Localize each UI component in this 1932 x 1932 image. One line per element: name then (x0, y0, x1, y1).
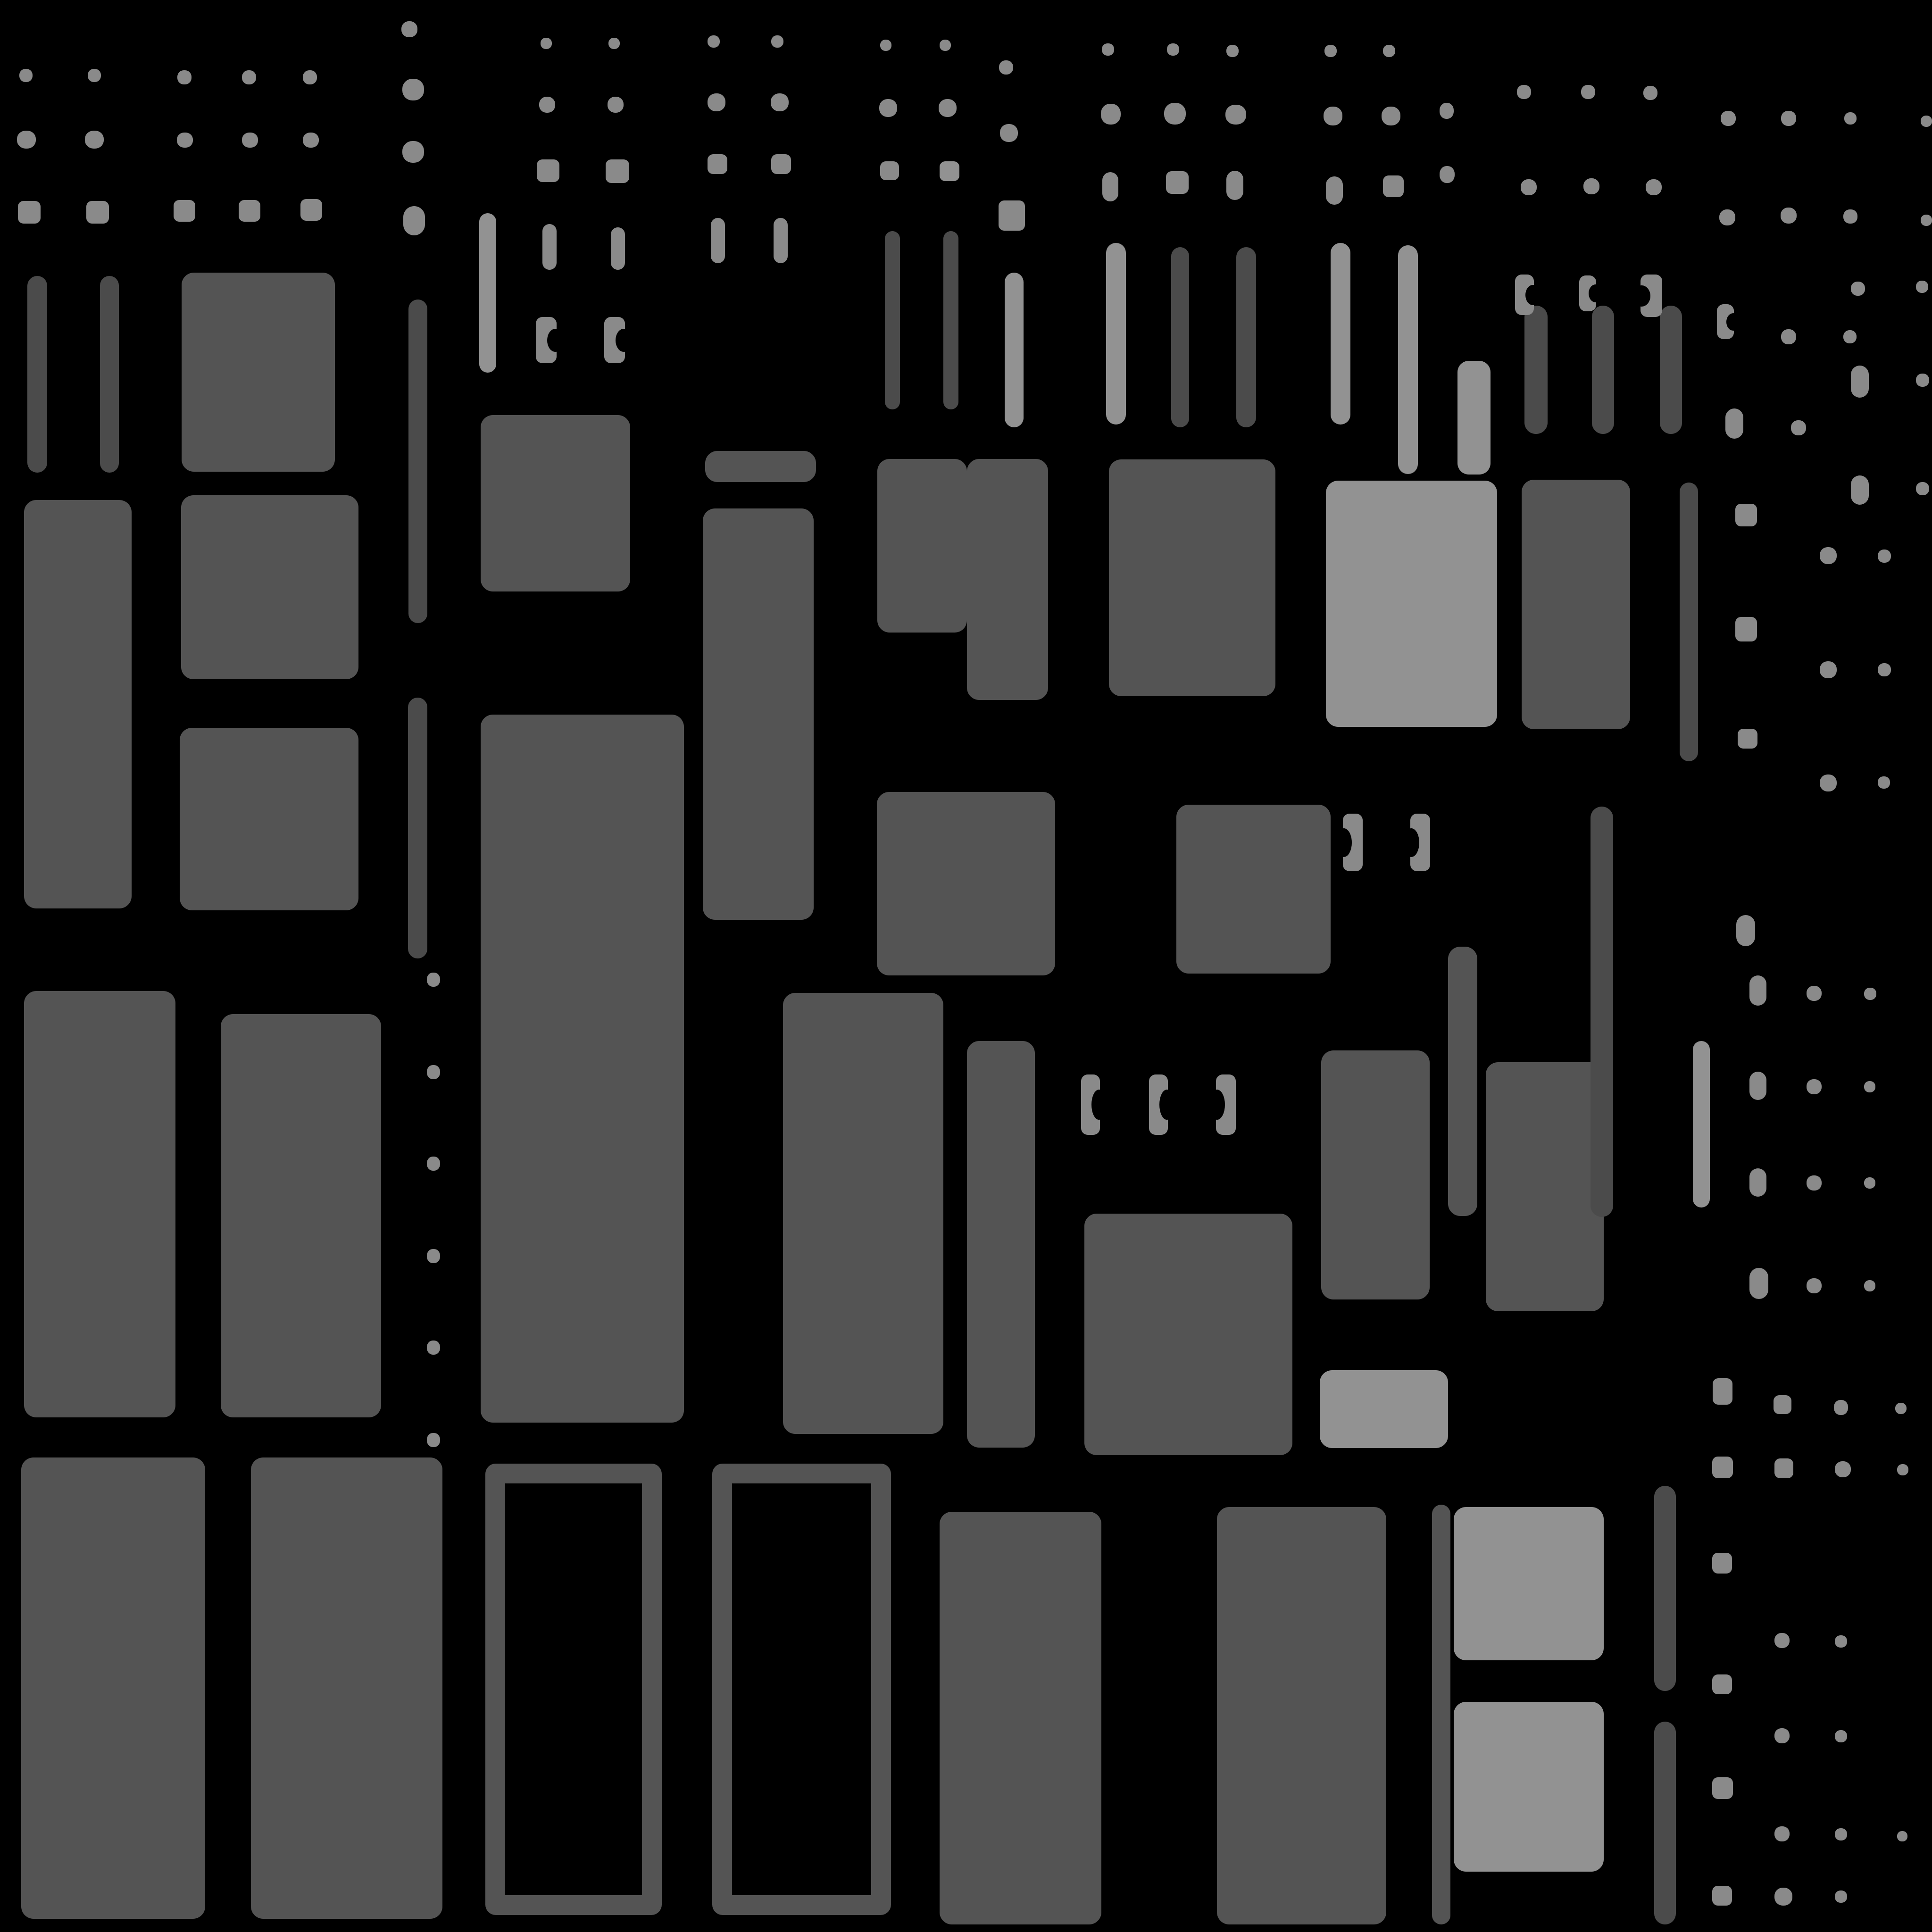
dot-marker (427, 973, 440, 987)
dot-marker (1721, 111, 1736, 126)
bracket-notch (616, 329, 625, 352)
vertical-bar (885, 231, 900, 409)
dot-marker (1719, 209, 1735, 225)
pill-marker (1749, 975, 1766, 1006)
panel-block (967, 1041, 1035, 1448)
dot-marker (1820, 547, 1837, 564)
dot-marker (1440, 103, 1454, 119)
panel-block (967, 459, 1048, 700)
dot-marker (1820, 774, 1837, 791)
dot-marker (1921, 215, 1932, 226)
dot-marker (880, 40, 891, 51)
dot-marker (1164, 103, 1186, 125)
dot-marker (771, 93, 789, 111)
dot-marker (1878, 550, 1891, 563)
dot-marker (1864, 988, 1876, 1000)
panel-block (877, 792, 1055, 975)
bracket-marker (1579, 275, 1596, 311)
dot-marker (1324, 45, 1337, 57)
pill-marker (1851, 475, 1869, 505)
dot-marker (1897, 1831, 1907, 1841)
dot-marker (1864, 1081, 1875, 1092)
dot-marker (19, 69, 33, 82)
dot-marker (1844, 112, 1857, 125)
dot-marker (1851, 282, 1865, 296)
dot-marker (427, 1157, 440, 1171)
vertical-bar (1005, 273, 1024, 427)
dot-marker (1921, 116, 1932, 127)
dot-marker (1517, 85, 1531, 99)
bracket-marker (1343, 814, 1363, 871)
bracket-notch (1726, 313, 1734, 331)
dot-marker (1781, 208, 1797, 224)
panel-block (1109, 459, 1275, 696)
panel-block (877, 459, 967, 633)
bracket-marker (1149, 1074, 1168, 1135)
dot-marker (402, 141, 424, 163)
dot-marker (1000, 124, 1018, 142)
panel-block (1176, 805, 1331, 974)
pill-marker (1749, 1072, 1766, 1100)
panel-block (1454, 1702, 1604, 1872)
dot-marker (1916, 374, 1929, 387)
pill-marker (1725, 408, 1743, 439)
bracket-marker (604, 317, 625, 363)
dot-marker (242, 133, 258, 148)
dot-marker (1643, 86, 1657, 100)
dot-marker (402, 79, 424, 100)
hollow-frame-block (712, 1464, 891, 1915)
square-marker (86, 201, 109, 224)
dot-marker (879, 99, 897, 117)
dot-marker (1835, 1635, 1847, 1648)
panel-block (182, 273, 335, 472)
mosaic-canvas (0, 0, 1932, 1932)
vertical-bar (1654, 1722, 1676, 1924)
dot-marker (1834, 1400, 1848, 1415)
square-marker (1735, 504, 1757, 526)
pill-marker (1326, 176, 1343, 205)
dot-marker (177, 133, 193, 148)
dot-marker (1843, 209, 1857, 224)
dot-marker (1581, 85, 1595, 99)
pill-marker (1851, 366, 1869, 398)
square-marker (1166, 171, 1189, 194)
vertical-bar (1432, 1505, 1450, 1924)
pill-marker (1749, 1268, 1768, 1299)
dot-marker (1895, 1403, 1907, 1414)
pill-marker (1102, 172, 1118, 201)
square-marker (1774, 1458, 1793, 1478)
vertical-bar (1236, 247, 1256, 427)
dot-marker (940, 40, 951, 51)
vertical-bar (479, 213, 496, 373)
pill-marker (1226, 171, 1243, 200)
dot-marker (541, 38, 552, 49)
bracket-notch (1343, 828, 1352, 857)
vertical-bar (1680, 483, 1698, 761)
panel-block (1320, 1370, 1448, 1448)
square-marker (606, 159, 629, 183)
dot-marker (1324, 107, 1342, 125)
panel-block (181, 495, 358, 679)
bracket-marker (1717, 304, 1734, 339)
panel-block (1321, 1050, 1430, 1299)
vertical-bar (1591, 807, 1613, 1217)
dot-marker (708, 35, 720, 48)
dot-marker (1807, 1278, 1822, 1293)
dot-marker (939, 99, 957, 117)
dot-marker (427, 1433, 440, 1447)
vertical-bar (1398, 245, 1418, 474)
bracket-notch (547, 329, 557, 352)
dot-marker (1440, 166, 1455, 183)
square-marker (174, 200, 195, 222)
panel-block (481, 715, 684, 1423)
square-marker (771, 154, 791, 174)
dot-marker (708, 93, 725, 111)
panel-block (783, 993, 943, 1434)
vertical-bar (408, 300, 427, 623)
bracket-notch (1159, 1090, 1168, 1120)
bracket-marker (536, 317, 557, 363)
square-marker (1713, 1378, 1732, 1405)
pill-marker (611, 227, 625, 270)
square-marker (1383, 175, 1404, 197)
dot-marker (17, 131, 36, 149)
dot-marker (1101, 104, 1121, 125)
dot-marker (85, 131, 104, 149)
panel-block (1084, 1214, 1292, 1455)
dot-marker (1835, 1730, 1847, 1742)
dot-marker (1835, 1828, 1847, 1840)
vertical-bar (100, 276, 119, 473)
dot-marker (1646, 179, 1662, 195)
bracket-notch (1091, 1090, 1100, 1120)
pill-marker (1749, 1168, 1766, 1197)
vertical-bar (1171, 247, 1189, 427)
dot-marker (1226, 45, 1239, 57)
vertical-bar (1106, 243, 1126, 425)
square-marker (1712, 1457, 1733, 1478)
vertical-bar (27, 276, 47, 473)
dot-marker (1774, 1728, 1790, 1743)
bracket-notch (1641, 285, 1650, 307)
dot-marker (427, 1341, 440, 1355)
panel-block (1522, 480, 1630, 729)
square-marker (940, 161, 959, 181)
pill-marker (542, 224, 557, 270)
panel-block (1326, 481, 1497, 727)
dot-marker (1521, 179, 1537, 195)
hollow-frame-block (485, 1464, 662, 1915)
dot-marker (1102, 43, 1114, 56)
dot-marker (242, 70, 256, 84)
panel-block (481, 415, 630, 591)
dot-marker (1167, 43, 1179, 56)
dot-marker (427, 1249, 440, 1263)
dot-marker (1916, 482, 1929, 495)
dot-marker (401, 21, 417, 37)
dot-marker (539, 97, 555, 113)
panel-block (940, 1512, 1101, 1924)
vertical-bar (1331, 243, 1350, 425)
panel-block (180, 728, 358, 910)
vertical-bar (1654, 1486, 1676, 1691)
bracket-marker (1515, 275, 1534, 315)
dot-marker (1864, 1177, 1875, 1189)
dot-marker (771, 35, 783, 48)
bracket-notch (1525, 285, 1534, 305)
square-marker (880, 161, 899, 180)
panel-block (221, 1014, 381, 1417)
square-marker (1738, 729, 1757, 749)
dot-marker (1864, 1280, 1875, 1291)
dot-marker (1878, 663, 1891, 676)
pill-marker (1736, 915, 1755, 946)
square-marker (1735, 617, 1757, 641)
dot-marker (1843, 330, 1857, 343)
square-marker (999, 200, 1025, 231)
bracket-notch (1589, 284, 1596, 302)
dot-marker (1791, 420, 1806, 435)
square-marker (300, 199, 322, 221)
panel-block (705, 451, 816, 482)
dot-marker (999, 60, 1013, 75)
vertical-bar (1660, 306, 1682, 434)
pill-marker (774, 218, 788, 263)
bracket-marker (1641, 275, 1662, 317)
bracket-marker (1216, 1074, 1236, 1135)
dot-marker (1583, 178, 1599, 194)
bracket-notch (1216, 1090, 1225, 1120)
dot-marker (1781, 329, 1796, 344)
dot-marker (1878, 776, 1890, 789)
dot-marker (1382, 107, 1400, 125)
pill-marker (403, 206, 425, 235)
dot-marker (608, 38, 620, 49)
dot-marker (1781, 111, 1796, 126)
square-marker (18, 201, 41, 224)
panel-block (21, 1457, 205, 1919)
bracket-marker (1081, 1074, 1100, 1135)
bracket-notch (1410, 828, 1419, 857)
vertical-bar (408, 698, 427, 958)
dot-marker (1820, 661, 1837, 678)
dot-marker (1225, 105, 1246, 125)
square-marker (1774, 1395, 1791, 1414)
dot-marker (177, 70, 192, 84)
vertical-bar (1693, 1041, 1710, 1207)
square-marker (1712, 1674, 1732, 1694)
dot-marker (1916, 281, 1928, 293)
square-marker (1712, 1553, 1732, 1574)
vertical-bar (1524, 306, 1548, 434)
panel-block (1448, 947, 1477, 1216)
panel-block (251, 1457, 442, 1919)
dot-marker (88, 69, 101, 82)
square-marker (239, 200, 260, 222)
dot-marker (303, 70, 317, 84)
dot-marker (1807, 986, 1822, 1001)
square-marker (1712, 1777, 1733, 1799)
dot-marker (1383, 45, 1395, 57)
dot-marker (1835, 1461, 1851, 1477)
vertical-bar (1457, 361, 1491, 475)
square-marker (708, 154, 727, 174)
panel-block (1454, 1507, 1604, 1660)
dot-marker (1774, 1888, 1792, 1906)
dot-marker (1835, 1890, 1847, 1903)
vertical-bar (943, 231, 958, 409)
square-marker (1712, 1886, 1732, 1906)
vertical-bar (1592, 306, 1614, 434)
dot-marker (1774, 1633, 1790, 1648)
dot-marker (1774, 1826, 1790, 1841)
panel-block (24, 991, 175, 1417)
bracket-marker (1410, 814, 1430, 871)
panel-block (1486, 1062, 1604, 1311)
dot-marker (303, 133, 319, 148)
dot-marker (1807, 1175, 1822, 1191)
panel-block (1217, 1507, 1386, 1924)
dot-marker (427, 1065, 440, 1079)
dot-marker (608, 97, 624, 113)
dot-marker (1897, 1464, 1908, 1475)
pill-marker (711, 218, 725, 263)
panel-block (24, 500, 132, 908)
square-marker (537, 159, 559, 182)
dot-marker (1807, 1079, 1822, 1094)
panel-block (703, 508, 814, 920)
